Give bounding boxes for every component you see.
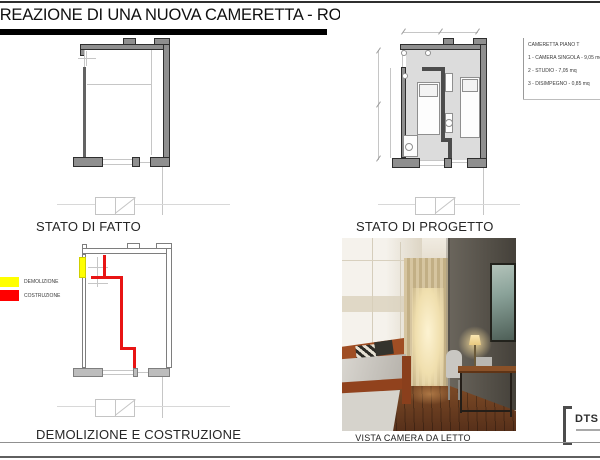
- lamp-shade: [469, 335, 481, 345]
- bottom-rule-upper: [0, 442, 600, 443]
- wall-bottom-left: [73, 157, 103, 167]
- threshold-line: [103, 164, 132, 165]
- bed-foot-post: [402, 356, 411, 404]
- logo-bracket-icon: [563, 406, 572, 445]
- schedule-item: 1 - CAMERA SINGOLA - 9,05 mq: [528, 55, 600, 61]
- construction-line: [133, 347, 136, 369]
- demolition-label: DEMOLIZIONE: [24, 279, 58, 285]
- floor-highlight: [408, 383, 452, 405]
- wall-bottom-right: [467, 158, 487, 168]
- new-partition: [448, 140, 452, 158]
- panel-label-fatto: STATO DI FATTO: [36, 219, 141, 234]
- door-opening-line: [140, 162, 150, 163]
- bottom-rule-lower: [0, 456, 600, 458]
- bed-left-pillow: [419, 84, 438, 97]
- top-rule: [0, 1, 600, 3]
- axis-line-v: [162, 377, 163, 418]
- threshold-line: [103, 374, 133, 375]
- panel-label-demolizione: DEMOLIZIONE E COSTRUZIONE: [36, 427, 241, 442]
- logo-text: DTS: [575, 413, 599, 425]
- schedule-item: 2 - STUDIO - 7,05 mq: [528, 68, 577, 74]
- dim-line-v: [151, 50, 152, 155]
- symbol-circle: [425, 50, 431, 56]
- dim-cross-h: [88, 283, 108, 284]
- dim-line-left-inner: [390, 68, 391, 158]
- schedule-title: CAMERETTA PIANO T: [528, 42, 580, 48]
- axis-line-v: [162, 167, 163, 215]
- wall-right: [163, 44, 170, 158]
- stool: [405, 143, 413, 151]
- wall-right-outline: [166, 248, 172, 368]
- title-underline-bar: [0, 29, 327, 35]
- dim-tick: [475, 28, 480, 34]
- sheet-title-wrap: CREAZIONE DI UNA NUOVA CAMERETTA - ROMA: [0, 6, 340, 28]
- bedroom-render: [342, 238, 516, 431]
- door-opening-line: [452, 162, 467, 163]
- dim-cross-v: [86, 51, 87, 66]
- wall-notch-outline: [127, 243, 140, 249]
- symbol-circle: [402, 73, 408, 79]
- window-glow: [412, 288, 444, 386]
- panel-label-progetto: STATO DI PROGETTO: [356, 219, 494, 234]
- axis-line-v: [483, 168, 484, 215]
- sheet-title: CREAZIONE DI UNA NUOVA CAMERETTA - ROMA: [0, 6, 340, 25]
- wall-step-outline: [82, 244, 87, 249]
- desk-upper: [445, 73, 453, 92]
- wall-bottom-mid: [444, 158, 452, 168]
- logo-subtext-line: [576, 429, 600, 431]
- wall-bottom-mid: [132, 157, 140, 167]
- wall-bottom-right: [148, 368, 170, 377]
- symbol-circle: [401, 50, 407, 56]
- desk-leg: [460, 373, 462, 413]
- desk-apron: [458, 371, 516, 373]
- chair-leg: [448, 378, 450, 400]
- bed-right-pillow: [462, 79, 478, 92]
- wall-left: [83, 67, 86, 157]
- wall-bottom-left: [73, 368, 103, 377]
- threshold-line: [103, 159, 132, 160]
- threshold-line: [420, 165, 444, 166]
- desk-rail: [460, 410, 512, 412]
- bed-pillow-dark: [374, 340, 394, 356]
- section-line: [57, 204, 230, 205]
- threshold-line: [103, 370, 133, 371]
- construction-label: COSTRUZIONE: [24, 293, 60, 299]
- schedule-border-bottom: [523, 99, 600, 100]
- demolition-swatch: [0, 277, 19, 287]
- construction-line: [120, 276, 123, 350]
- wall-notch: [123, 38, 136, 45]
- stool: [445, 119, 453, 127]
- dim-tick: [376, 155, 381, 161]
- dim-line-h: [87, 84, 152, 85]
- threshold-line: [420, 160, 444, 161]
- wall-bottom-left: [392, 158, 420, 168]
- bed-base: [342, 390, 400, 431]
- demolition-wall-segment: [79, 257, 86, 278]
- schedule-border-left: [523, 38, 524, 99]
- section-line: [57, 406, 230, 407]
- wall-art: [490, 263, 516, 342]
- wall-right: [480, 44, 487, 168]
- door-opening-line: [138, 372, 148, 373]
- dim-cross-h: [78, 58, 96, 59]
- schedule-item: 3 - DISIMPEGNO - 0,85 mq: [528, 81, 590, 87]
- wall-bottom-right: [150, 157, 170, 167]
- drawing-sheet: CREAZIONE DI UNA NUOVA CAMERETTA - ROMA …: [0, 0, 600, 460]
- construction-line: [91, 276, 123, 279]
- construction-swatch: [0, 290, 19, 301]
- construction-line: [103, 255, 106, 278]
- wall-notch: [443, 38, 454, 45]
